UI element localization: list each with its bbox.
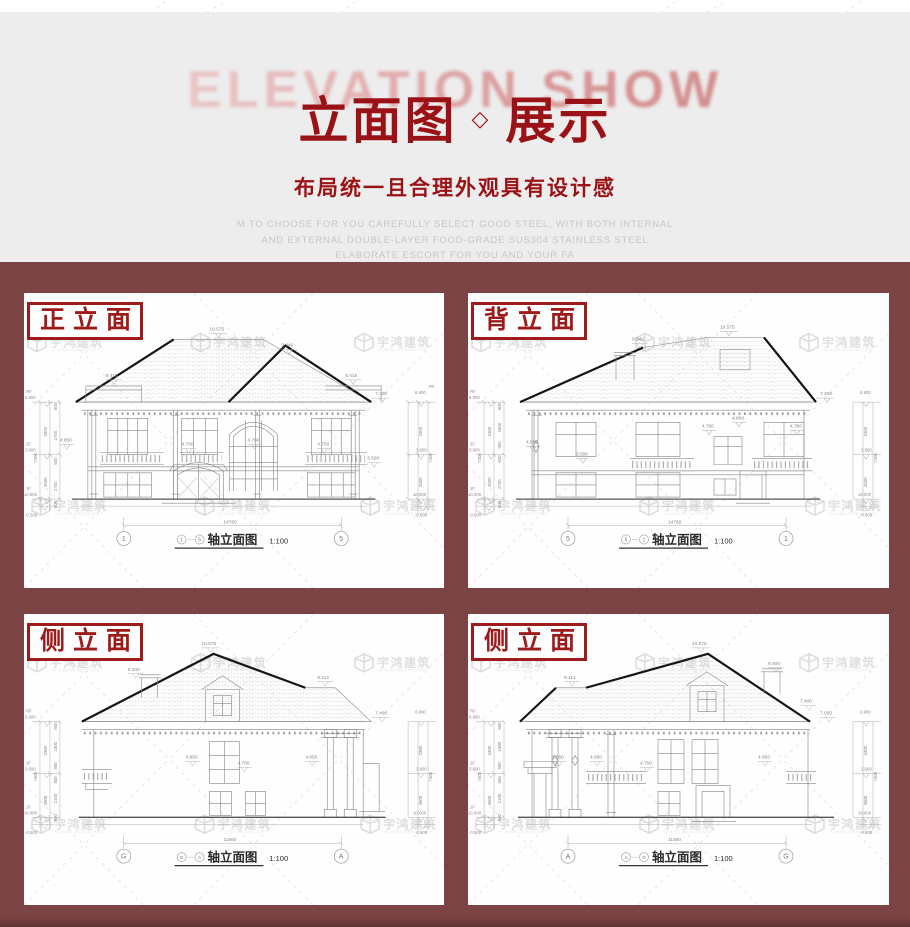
dim: 3.500 bbox=[367, 456, 379, 462]
elevation-panel-front: 正立面 bbox=[24, 293, 444, 588]
diamond-separator-icon: ◇ bbox=[472, 106, 492, 131]
hero-header: ELEVATION SHOW 立面图◇展示 布局统一且合理外观具有设计感 M T… bbox=[0, 12, 910, 262]
dim: 1800 bbox=[497, 741, 502, 751]
dim: 3300 bbox=[418, 745, 423, 755]
dim: 9.940 bbox=[281, 343, 293, 349]
span-dim: 11560 bbox=[668, 837, 681, 843]
span-dim: 14760 bbox=[668, 519, 682, 525]
description: M TO CHOOSE FOR YOU CAREFULLY SELECT GOO… bbox=[0, 217, 910, 262]
dim: 7.400 bbox=[375, 711, 387, 717]
subtitle: 布局统一且合理外观具有设计感 bbox=[0, 172, 910, 202]
dim: 9.415 bbox=[106, 373, 118, 379]
dim: 10.575 bbox=[210, 326, 225, 332]
dim: 900 bbox=[497, 441, 502, 449]
dim: 7400 bbox=[873, 771, 878, 781]
dim: -0.500 bbox=[25, 830, 38, 835]
dim: 3.600 bbox=[861, 766, 872, 771]
caption-title: 轴立面图 bbox=[652, 850, 702, 865]
dim: 600 bbox=[497, 455, 502, 463]
dim: 3300 bbox=[487, 426, 492, 436]
caption-axis: A bbox=[198, 855, 202, 861]
panel-grid: 正立面 bbox=[24, 293, 889, 905]
dim: 900 bbox=[53, 762, 58, 770]
axis-circle: 1 bbox=[122, 536, 126, 543]
dim: 3600 bbox=[863, 795, 868, 805]
dim: ±0.000 bbox=[24, 492, 38, 497]
description-line: AND EXTERNAL DOUBLE-LAYER FOOD-GRADE SUS… bbox=[0, 233, 910, 249]
dim: 3300 bbox=[487, 745, 492, 755]
dim: 2700 bbox=[53, 481, 58, 491]
dim: 4.700 bbox=[237, 760, 249, 766]
page: ELEVATION SHOW 立面图◇展示 布局统一且合理外观具有设计感 M T… bbox=[0, 0, 910, 927]
dim: 3600 bbox=[43, 477, 48, 487]
dim: 4.800 bbox=[732, 415, 744, 421]
dim: 1800 bbox=[497, 422, 502, 432]
elevation-section: 正立面 bbox=[0, 262, 910, 927]
elevation-panel-back: 背立面 bbox=[468, 293, 889, 588]
dim: 3.600 bbox=[416, 448, 427, 453]
dim: -0.500 bbox=[860, 512, 873, 517]
dim: 9.415 bbox=[345, 373, 357, 379]
dim: 7.050 bbox=[820, 711, 832, 717]
axis-circle: G bbox=[121, 854, 126, 861]
dim: 2F bbox=[26, 760, 31, 765]
dim: 3600 bbox=[418, 795, 423, 805]
dim: 4.850 bbox=[526, 440, 538, 446]
dim: ±0.000 bbox=[24, 810, 38, 815]
dim: 9.940 bbox=[632, 336, 644, 342]
caption-axis: 5 bbox=[198, 538, 201, 544]
dim: 3600 bbox=[418, 477, 423, 487]
dim: -0.500 bbox=[415, 830, 428, 835]
dim: 3.600 bbox=[469, 448, 480, 453]
caption-scale: 1:100 bbox=[269, 537, 288, 546]
axis-circle: A bbox=[566, 854, 571, 861]
dim: RF bbox=[470, 389, 476, 394]
caption-row: 11560 A G A G 轴立面图 1:100 bbox=[561, 835, 793, 865]
dim: 3600 bbox=[43, 795, 48, 805]
dim: 3.600 bbox=[416, 766, 427, 771]
caption-scale: 1:100 bbox=[714, 854, 733, 863]
caption-scale: 1:100 bbox=[714, 537, 733, 546]
dim: 3.500 bbox=[576, 452, 588, 458]
panel-label-text: 侧立面 bbox=[40, 627, 139, 655]
dim: 2700 bbox=[53, 430, 58, 440]
dim: 2100 bbox=[497, 793, 502, 803]
dim: 7400 bbox=[477, 452, 482, 462]
dim: -0.500 bbox=[860, 830, 873, 835]
dim: ±0.000 bbox=[858, 810, 872, 815]
caption-axis: 1 bbox=[180, 538, 183, 544]
dim: 7400 bbox=[428, 771, 433, 781]
dim: 3600 bbox=[487, 795, 492, 805]
dim: 2F bbox=[26, 442, 31, 447]
caption-row: 14760 1 5 1 5 轴立面图 1:100 bbox=[117, 517, 348, 548]
dim: 7400 bbox=[428, 452, 433, 462]
dim: RF bbox=[429, 384, 435, 389]
caption-axis: G bbox=[180, 855, 184, 861]
title-part2: 展示 bbox=[505, 93, 611, 149]
house-drawing bbox=[79, 654, 387, 824]
dim: 9.400 bbox=[128, 667, 140, 673]
dim: 4.850 bbox=[590, 755, 602, 761]
dim: 4.850 bbox=[186, 755, 198, 761]
description-line: M TO CHOOSE FOR YOU CAREFULLY SELECT GOO… bbox=[0, 217, 910, 233]
dim: 600 bbox=[497, 776, 502, 784]
elevation-panel-side-left: 侧立面 bbox=[24, 614, 444, 905]
house-drawing bbox=[516, 337, 820, 506]
dim: -0.500 bbox=[469, 830, 482, 835]
dim: 6.900 bbox=[860, 710, 871, 715]
dim: 9.114 bbox=[317, 675, 329, 681]
dim: 600 bbox=[53, 776, 58, 784]
span-dim: 14760 bbox=[224, 519, 238, 525]
dim: 6.900 bbox=[469, 395, 480, 400]
dim: 4.700 bbox=[702, 423, 714, 429]
caption-axis: G bbox=[642, 855, 646, 861]
dim: 10.575 bbox=[202, 641, 217, 647]
dim: 4.850 bbox=[552, 755, 564, 761]
caption-axis: 5 bbox=[625, 538, 628, 544]
caption-title: 轴立面图 bbox=[652, 532, 702, 547]
caption-scale: 1:100 bbox=[269, 854, 288, 863]
panel-label: 侧立面 bbox=[471, 623, 587, 661]
dim: 7400 bbox=[477, 771, 482, 781]
dim: 600 bbox=[497, 402, 502, 410]
dim: 4.700 bbox=[182, 442, 194, 448]
dim: 1F bbox=[26, 804, 31, 809]
dim: 3300 bbox=[43, 426, 48, 436]
dim: 600 bbox=[53, 402, 58, 410]
dim: 6.900 bbox=[25, 715, 36, 720]
panel-label-text: 正立面 bbox=[40, 306, 139, 334]
dim: 1F bbox=[470, 486, 475, 491]
dim: 9.400 bbox=[768, 661, 780, 667]
dim: -0.500 bbox=[415, 512, 428, 517]
dim: 3600 bbox=[487, 477, 492, 487]
dim: 900 bbox=[53, 814, 58, 822]
dim: 2F bbox=[470, 442, 475, 447]
axis-circle: 5 bbox=[566, 536, 570, 543]
axis-circle: A bbox=[339, 854, 344, 861]
dim: ±0.000 bbox=[413, 810, 427, 815]
dim: 900 bbox=[497, 762, 502, 770]
axis-circle: 5 bbox=[339, 536, 343, 543]
panel-label-text: 侧立面 bbox=[484, 627, 583, 655]
dim: 2F bbox=[470, 760, 475, 765]
dim: 4.850 bbox=[758, 755, 770, 761]
panel-label: 侧立面 bbox=[27, 623, 143, 661]
top-strip bbox=[0, 0, 910, 12]
dim: 600 bbox=[53, 722, 58, 730]
span-dim: 11560 bbox=[224, 837, 237, 843]
dim: 1800 bbox=[53, 741, 58, 751]
dim: 7.400 bbox=[820, 391, 832, 397]
dim: 6.900 bbox=[860, 390, 871, 395]
dim: 3.600 bbox=[25, 766, 36, 771]
elevation-panel-side-right: 侧立面 bbox=[468, 614, 889, 905]
dim: 7400 bbox=[33, 771, 38, 781]
dim: 4.700 bbox=[247, 437, 259, 443]
dim: 10.575 bbox=[692, 641, 707, 647]
dim: 4.700 bbox=[317, 442, 329, 448]
dim: ±0.000 bbox=[858, 492, 872, 497]
caption-axis: A bbox=[624, 855, 628, 861]
dim: 1F bbox=[26, 486, 31, 491]
dim: 7.400 bbox=[375, 391, 387, 397]
dim: 3.600 bbox=[25, 448, 36, 453]
dim: RF bbox=[470, 709, 476, 714]
dim: 4.850 bbox=[305, 755, 317, 761]
dim: 3.600 bbox=[469, 766, 480, 771]
caption-title: 轴立面图 bbox=[208, 850, 258, 865]
dim: 4.700 bbox=[790, 423, 802, 429]
dim: ±0.000 bbox=[468, 492, 482, 497]
dim: 4.850 bbox=[60, 437, 72, 443]
panel-label-text: 背立面 bbox=[484, 306, 583, 334]
dim: 7.400 bbox=[800, 699, 812, 705]
page-title: 立面图◇展示 bbox=[0, 96, 910, 146]
dim: 3300 bbox=[43, 745, 48, 755]
dim: -0.500 bbox=[25, 512, 38, 517]
dim: 1F bbox=[470, 804, 475, 809]
dim: 6.900 bbox=[469, 715, 480, 720]
dim: 500 bbox=[53, 500, 58, 508]
caption-row: 11560 G A G A 轴立面图 1:100 bbox=[117, 835, 348, 865]
panel-label: 背立面 bbox=[471, 302, 587, 340]
panel-label: 正立面 bbox=[27, 302, 143, 340]
dim: 4.700 bbox=[640, 760, 652, 766]
caption-axis: 1 bbox=[643, 538, 646, 544]
dim: -0.500 bbox=[469, 512, 482, 517]
dim: 3300 bbox=[418, 426, 423, 436]
dim: 3.600 bbox=[861, 448, 872, 453]
dim: ±0.000 bbox=[468, 810, 482, 815]
title-part1: 立面图 bbox=[299, 93, 458, 149]
axis-circle: 1 bbox=[784, 536, 788, 543]
dim: 600 bbox=[53, 457, 58, 465]
axis-circle: G bbox=[783, 854, 788, 861]
caption-row: 14760 5 1 5 1 轴立面图 1:100 bbox=[561, 517, 793, 548]
dim: 6.900 bbox=[25, 395, 36, 400]
dim: 500 bbox=[497, 500, 502, 508]
dim: ±0.000 bbox=[413, 492, 427, 497]
dim: 9.114 bbox=[564, 675, 576, 681]
dim: 600 bbox=[497, 722, 502, 730]
dim: 2700 bbox=[497, 479, 502, 489]
dim: 7400 bbox=[33, 452, 38, 462]
dim: RF bbox=[26, 709, 32, 714]
house-drawing bbox=[72, 339, 381, 506]
dim: 10.575 bbox=[720, 324, 735, 330]
caption-title: 轴立面图 bbox=[208, 532, 258, 547]
description-line: ELABORATE ESCORT FOR YOU AND YOUR FA bbox=[0, 248, 910, 262]
dim: RF bbox=[26, 389, 32, 394]
dim: 3600 bbox=[863, 477, 868, 487]
dim: 6.900 bbox=[415, 390, 426, 395]
dim: 7400 bbox=[873, 452, 878, 462]
dim: 900 bbox=[497, 814, 502, 822]
dim: 3300 bbox=[863, 745, 868, 755]
dim: 2100 bbox=[53, 793, 58, 803]
dim: 6.900 bbox=[415, 710, 426, 715]
dim: 3300 bbox=[863, 426, 868, 436]
